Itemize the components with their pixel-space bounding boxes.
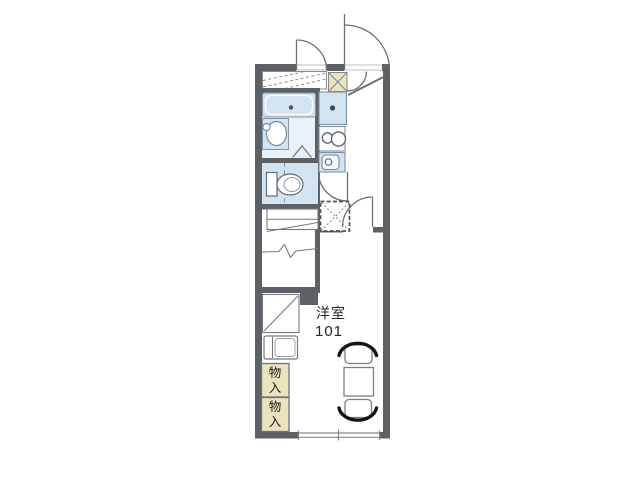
toilet xyxy=(262,163,318,204)
room-label: 洋室 xyxy=(316,305,346,322)
under-stair-closet xyxy=(263,295,300,333)
chair-1 xyxy=(339,343,377,363)
washbasin xyxy=(263,119,289,150)
dining-table xyxy=(344,368,374,397)
bathtub xyxy=(263,93,316,117)
chair-2 xyxy=(339,400,377,421)
window xyxy=(298,430,380,441)
toilet-door xyxy=(319,172,348,201)
shoe-cabinet xyxy=(329,73,348,92)
kitchen-sink xyxy=(319,153,345,173)
room-number: 101 xyxy=(315,323,343,341)
washing-machine-space xyxy=(321,202,350,232)
stove-burners xyxy=(319,127,346,152)
kitchen-counter xyxy=(319,92,347,125)
genkan-step-line xyxy=(348,77,385,96)
staircase xyxy=(262,209,318,258)
refrigerator-space xyxy=(264,336,298,359)
entrance-door xyxy=(345,14,390,91)
storage-label-2: 物入 xyxy=(261,400,289,429)
storage-label-1: 物入 xyxy=(261,366,289,395)
floor-plan-drawing xyxy=(0,0,640,480)
balcony-hatch xyxy=(263,72,327,90)
floor-plan: 洋室 101 物入 物入 xyxy=(0,0,640,480)
